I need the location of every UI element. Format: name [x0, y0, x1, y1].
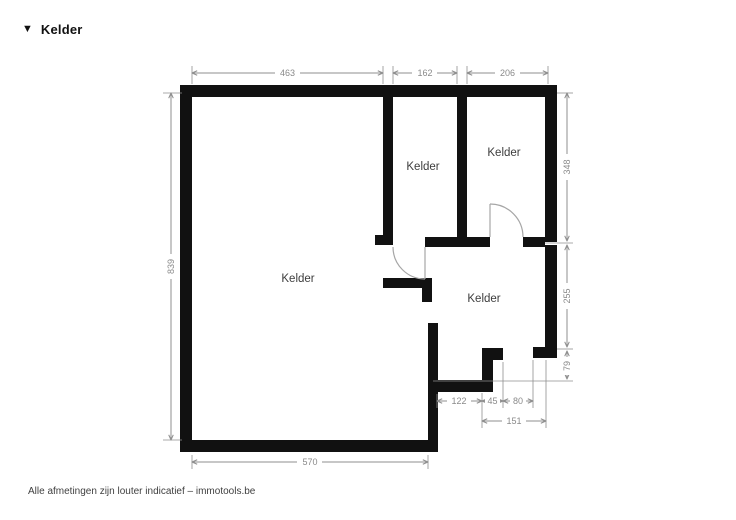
room-label-middle: Kelder [406, 161, 439, 173]
wall-interior-2 [457, 97, 467, 240]
wall-stub-hook [422, 278, 432, 302]
dimension-label: 255 [562, 288, 572, 303]
wall-right-foot [533, 347, 547, 358]
wall-left [180, 85, 192, 452]
wall-top [180, 85, 557, 97]
wall-south-lower-room [428, 380, 488, 392]
wall-right-lower [545, 245, 557, 358]
floorplan-drawing: 463 162 206 839 348 255 79 [0, 0, 736, 520]
wall-interior-1 [383, 97, 393, 237]
wall-right-room-bottom [523, 237, 545, 247]
wall-step-leg [482, 360, 493, 392]
door-arc-right-room [490, 204, 523, 237]
dimension-label: 80 [513, 396, 523, 406]
dimension-label: 162 [417, 68, 432, 78]
room-label-upper-right: Kelder [487, 147, 520, 159]
walls [180, 85, 557, 452]
dimension-lines: 463 162 206 839 348 255 79 [163, 66, 573, 469]
dimension-label: 348 [562, 159, 572, 174]
wall-interior-1-foot [375, 235, 393, 245]
wall-mid-bottom [425, 237, 490, 247]
dimension-label: 206 [500, 68, 515, 78]
dimension-label: 122 [451, 396, 466, 406]
dimension-label: 45 [487, 396, 497, 406]
room-label-lower-right: Kelder [467, 293, 500, 305]
wall-step-cap [482, 348, 503, 360]
wall-bottom [180, 440, 438, 452]
room-label-large: Kelder [281, 273, 314, 285]
wall-right-upper [545, 85, 557, 242]
dimension-label: 570 [302, 457, 317, 467]
dimension-label: 151 [506, 416, 521, 426]
dimension-label: 839 [166, 259, 176, 274]
dimension-label: 463 [280, 68, 295, 78]
dimension-label: 79 [562, 361, 572, 371]
door-arc-large-room [393, 247, 425, 279]
floorplan-page: ▼ Kelder [0, 0, 736, 520]
disclaimer-text: Alle afmetingen zijn louter indicatief –… [28, 486, 255, 497]
